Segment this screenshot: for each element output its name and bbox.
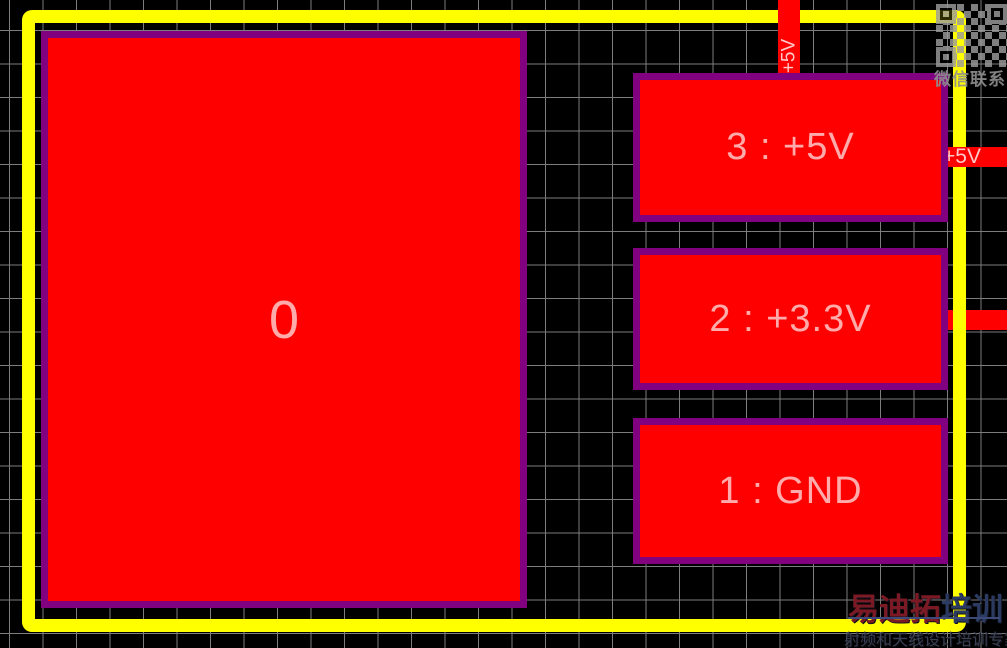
watermark-title-red: 易迪拓 — [848, 592, 941, 627]
pad-0[interactable]: 0 — [41, 31, 527, 608]
watermark-underline — [848, 617, 1000, 619]
qr-code-icon — [936, 4, 1007, 67]
pad-1-gnd[interactable]: 1 : GND — [633, 418, 948, 564]
net-label-right-5v: +5V — [940, 147, 1007, 167]
wechat-contact-label: 微信联系 — [934, 65, 1007, 90]
qr-finder-icon — [987, 4, 1007, 24]
pcb-canvas[interactable]: +5V +5V 0 3 : +5V 2 : +3.3V 1 : GND 微信联系… — [0, 0, 1007, 648]
watermark-title: 易迪拓培训 — [848, 584, 1003, 629]
pad-3-plus5v[interactable]: 3 : +5V — [633, 73, 948, 222]
qr-finder-icon — [936, 47, 956, 67]
watermark-subtitle: 射频和天线设计培训专家 — [844, 626, 1007, 648]
pad-3-label: 3 : +5V — [726, 126, 854, 169]
pad-0-label: 0 — [269, 289, 299, 351]
watermark-title-blue: 培训 — [941, 592, 1003, 627]
pad-2-plus3v3[interactable]: 2 : +3.3V — [633, 248, 948, 390]
net-label-top-5v: +5V — [780, 39, 799, 73]
pad-1-label: 1 : GND — [718, 470, 862, 513]
qr-finder-icon — [936, 4, 956, 24]
pad-2-label: 2 : +3.3V — [709, 298, 871, 341]
trace-top-vertical[interactable]: +5V — [778, 0, 800, 84]
trace-pad3-right[interactable]: +5V — [940, 147, 1007, 167]
